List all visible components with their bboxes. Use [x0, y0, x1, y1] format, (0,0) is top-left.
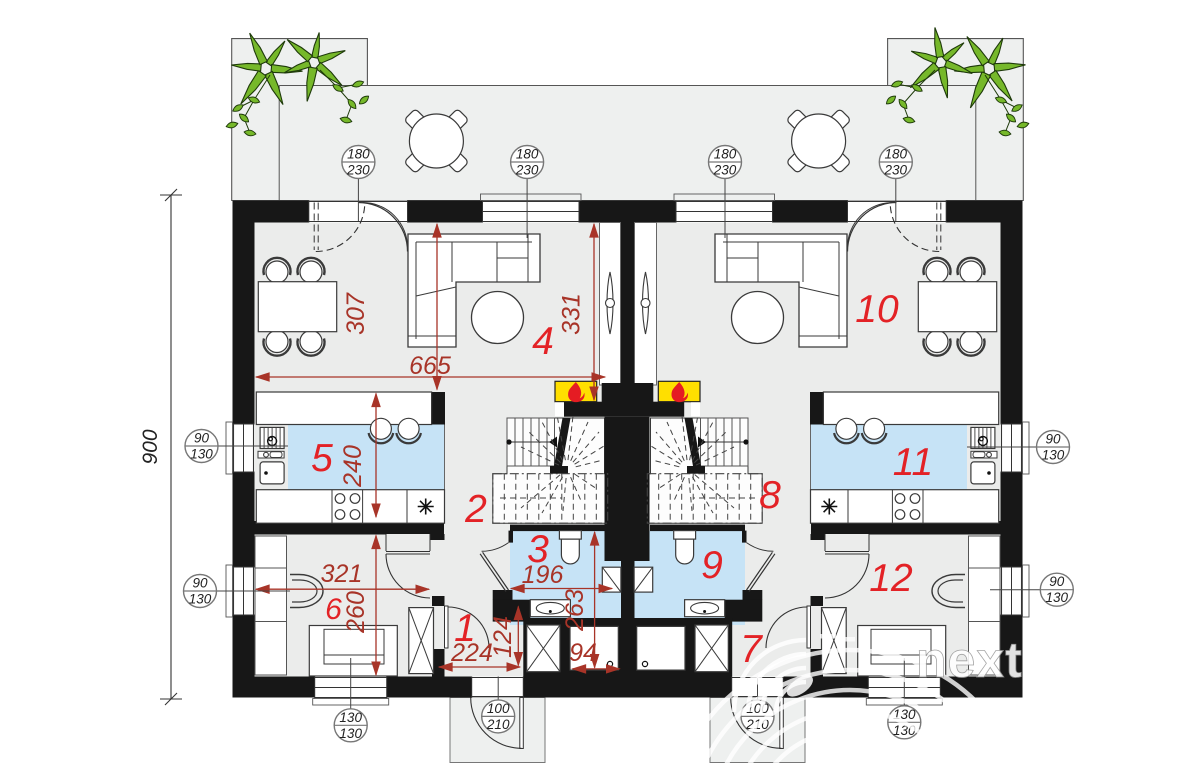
svg-text:12: 12 — [869, 557, 913, 600]
svg-text:90: 90 — [1049, 574, 1065, 589]
svg-text:130: 130 — [339, 710, 362, 725]
svg-text:230: 230 — [515, 163, 539, 178]
svg-text:665: 665 — [409, 352, 451, 380]
svg-text:8: 8 — [759, 474, 781, 517]
svg-text:210: 210 — [486, 717, 510, 732]
svg-text:307: 307 — [342, 292, 370, 335]
svg-text:10: 10 — [855, 288, 899, 331]
svg-text:130: 130 — [339, 726, 362, 741]
svg-text:130: 130 — [190, 447, 213, 462]
svg-text:next: next — [916, 632, 1023, 688]
svg-text:6: 6 — [325, 593, 342, 626]
svg-text:260: 260 — [342, 591, 370, 634]
svg-text:263: 263 — [561, 589, 589, 632]
svg-text:124: 124 — [489, 616, 517, 658]
svg-text:1: 1 — [454, 607, 476, 650]
svg-text:100: 100 — [487, 701, 510, 716]
svg-text:2: 2 — [464, 488, 487, 531]
svg-text:230: 230 — [346, 163, 370, 178]
svg-text:321: 321 — [321, 560, 363, 588]
svg-text:3: 3 — [527, 528, 549, 571]
svg-text:130: 130 — [1042, 448, 1065, 463]
svg-text:94: 94 — [569, 639, 597, 667]
svg-text:230: 230 — [713, 163, 737, 178]
svg-text:9: 9 — [701, 544, 723, 587]
svg-text:180: 180 — [516, 147, 539, 162]
svg-text:331: 331 — [558, 293, 586, 335]
svg-text:11: 11 — [893, 441, 934, 484]
svg-text:180: 180 — [885, 147, 908, 162]
svg-text:5: 5 — [311, 437, 333, 480]
svg-text:240: 240 — [339, 445, 367, 488]
svg-text:130: 130 — [189, 592, 212, 607]
svg-text:900: 900 — [139, 429, 162, 464]
svg-text:4: 4 — [532, 320, 554, 363]
svg-text:130: 130 — [1046, 590, 1069, 605]
svg-text:90: 90 — [1045, 432, 1061, 447]
svg-text:90: 90 — [192, 576, 208, 591]
svg-text:180: 180 — [714, 147, 737, 162]
svg-text:180: 180 — [347, 147, 370, 162]
svg-text:230: 230 — [884, 163, 908, 178]
svg-text:90: 90 — [194, 431, 210, 446]
